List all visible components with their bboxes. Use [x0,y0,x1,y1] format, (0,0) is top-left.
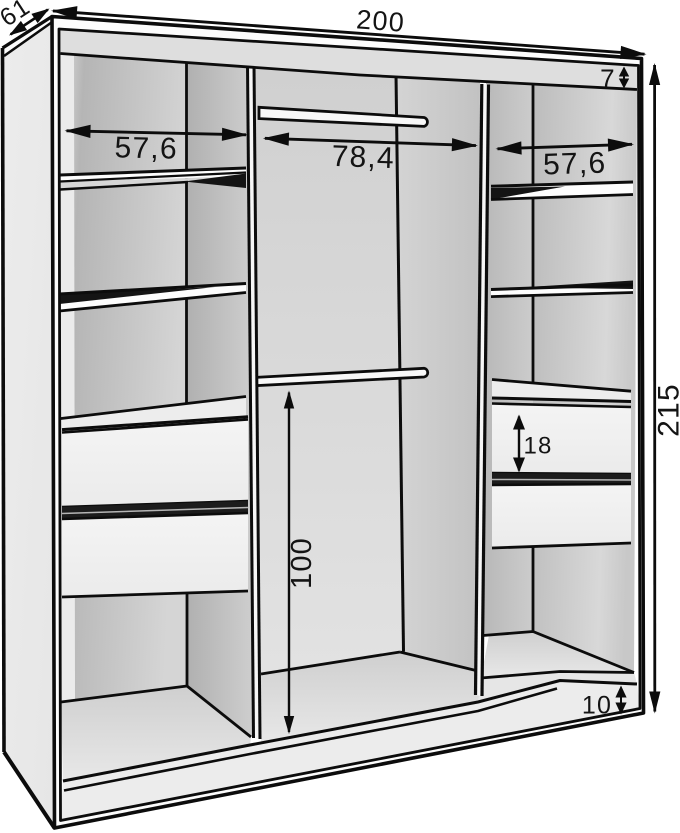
svg-text:57,6: 57,6 [543,147,607,182]
svg-text:200: 200 [355,4,406,37]
svg-text:215: 215 [653,383,680,437]
svg-text:78,4: 78,4 [331,140,395,175]
svg-text:57,6: 57,6 [114,131,178,165]
svg-text:10: 10 [582,692,612,720]
svg-text:18: 18 [524,433,553,460]
svg-text:100: 100 [286,537,318,589]
svg-text:7: 7 [600,64,616,94]
